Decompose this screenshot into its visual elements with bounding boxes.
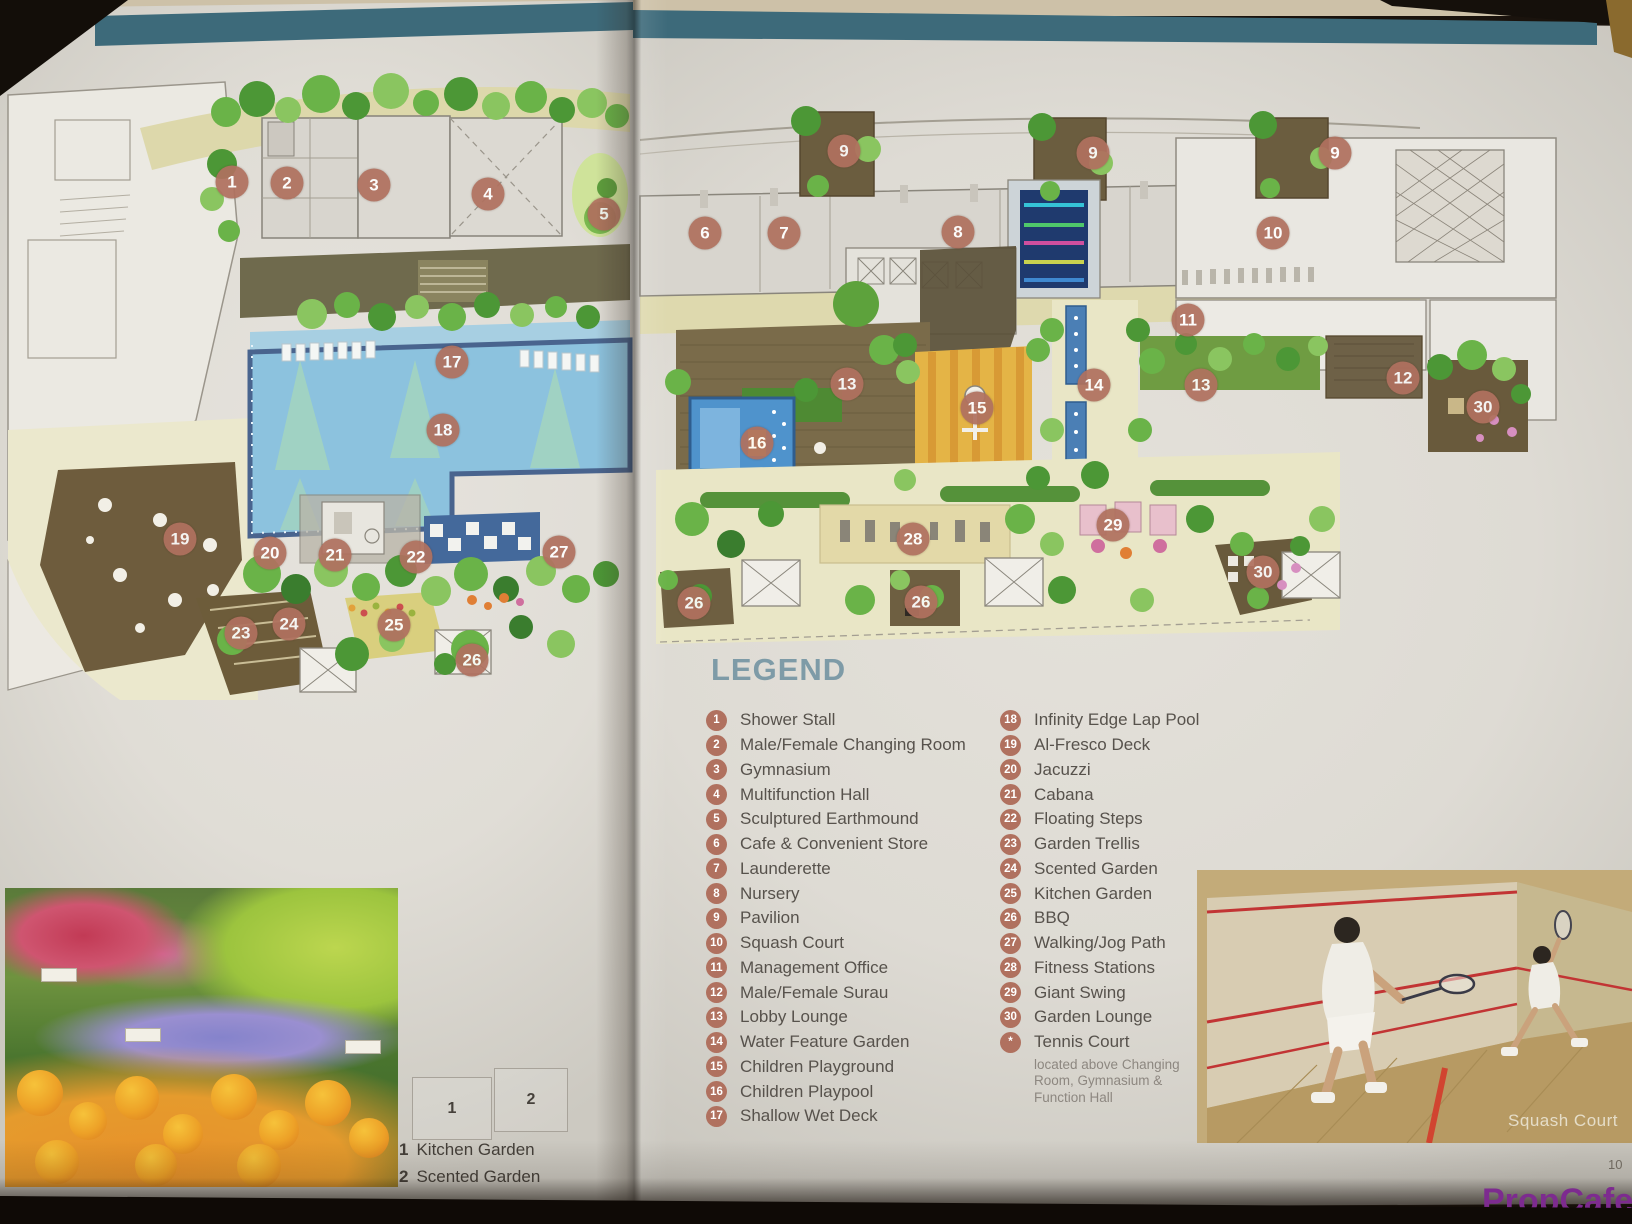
legend-item-label: Kitchen Garden — [1034, 884, 1152, 904]
legend-item-label: Tennis Court — [1034, 1032, 1129, 1052]
marigold-flower — [69, 1102, 107, 1140]
marigold-flower — [35, 1140, 79, 1184]
legend-number-badge: 16 — [706, 1081, 727, 1102]
legend-item-label: Nursery — [740, 884, 800, 904]
legend-number-badge: 12 — [706, 982, 727, 1003]
legend-item: 11 Management Office — [706, 956, 1006, 981]
legend-item-label: Cabana — [1034, 785, 1094, 805]
marigold-flower — [349, 1118, 389, 1158]
plant-label-tag — [41, 968, 77, 982]
legend-number-badge: 13 — [706, 1007, 727, 1028]
legend-item-label: Shower Stall — [740, 710, 835, 730]
caption-number: 2 — [399, 1167, 408, 1187]
legend-item-label: Garden Lounge — [1034, 1007, 1152, 1027]
marigold-flower — [135, 1144, 177, 1186]
squash-photo-caption: Squash Court — [1508, 1111, 1618, 1131]
legend-item-label: Floating Steps — [1034, 809, 1143, 829]
caption-label: Scented Garden — [416, 1167, 540, 1187]
garden-photo — [5, 888, 398, 1187]
legend-item-label: Launderette — [740, 859, 831, 879]
legend-item: 4 Multifunction Hall — [706, 782, 1006, 807]
legend-item-label: Giant Swing — [1034, 983, 1126, 1003]
brochure-photo: 1234567899910111213131415161718192021222… — [0, 0, 1632, 1224]
legend-number-badge: 4 — [706, 784, 727, 805]
legend-number-badge: 7 — [706, 858, 727, 879]
marigold-flower — [237, 1144, 281, 1187]
legend-title: LEGEND — [711, 652, 846, 688]
legend-item: 7 Launderette — [706, 857, 1006, 882]
tennis-note-line: Room, Gymnasium & — [1034, 1073, 1204, 1090]
legend-item-label: Scented Garden — [1034, 859, 1158, 879]
legend-item: 2 Male/Female Changing Room — [706, 733, 1006, 758]
legend-item-label: Multifunction Hall — [740, 785, 869, 805]
inset-box-kitchen-garden: 1 — [412, 1077, 492, 1140]
watermark: PropCafe.Net — [1482, 1182, 1632, 1221]
legend-number-badge: 28 — [1000, 957, 1021, 978]
legend-number-badge: 8 — [706, 883, 727, 904]
legend-item-label: Children Playground — [740, 1057, 894, 1077]
legend-number-badge: 1 — [706, 710, 727, 731]
legend-item: 1 Shower Stall — [706, 708, 1006, 733]
legend-item: 19 Al-Fresco Deck — [1000, 733, 1300, 758]
legend-item-label: Male/Female Surau — [740, 983, 888, 1003]
legend-item: 10 Squash Court — [706, 931, 1006, 956]
legend-item-label: Cafe & Convenient Store — [740, 834, 928, 854]
squash-photo-art — [1197, 870, 1632, 1143]
legend-item: 18 Infinity Edge Lap Pool — [1000, 708, 1300, 733]
legend-column-left: 1 Shower Stall 2 Male/Female Changing Ro… — [706, 708, 1006, 1129]
tennis-note-line: Function Hall — [1034, 1090, 1204, 1107]
tennis-asterisk-badge: * — [1000, 1032, 1021, 1053]
legend-number-badge: 14 — [706, 1032, 727, 1053]
legend-item: 14 Water Feature Garden — [706, 1030, 1006, 1055]
legend-item: 23 Garden Trellis — [1000, 832, 1300, 857]
legend-number-badge: 2 — [706, 735, 727, 756]
legend-item: 17 Shallow Wet Deck — [706, 1104, 1006, 1129]
legend-item-label: Infinity Edge Lap Pool — [1034, 710, 1199, 730]
legend-number-badge: 27 — [1000, 933, 1021, 954]
legend-number-badge: 19 — [1000, 735, 1021, 756]
legend-number-badge: 21 — [1000, 784, 1021, 805]
legend-item: 22 Floating Steps — [1000, 807, 1300, 832]
legend-item: 6 Cafe & Convenient Store — [706, 832, 1006, 857]
legend-number-badge: 9 — [706, 908, 727, 929]
squash-court-photo: Squash Court — [1197, 870, 1632, 1143]
legend-item: 13 Lobby Lounge — [706, 1005, 1006, 1030]
legend-number-badge: 10 — [706, 933, 727, 954]
legend-item-label: Squash Court — [740, 933, 844, 953]
marigold-flower — [305, 1080, 351, 1126]
legend-item-label: Pavilion — [740, 908, 800, 928]
legend-item-label: Male/Female Changing Room — [740, 735, 966, 755]
legend-number-badge: 29 — [1000, 982, 1021, 1003]
legend-item-label: Al-Fresco Deck — [1034, 735, 1150, 755]
marigold-flower — [211, 1074, 257, 1120]
caption-number: 1 — [399, 1140, 408, 1160]
legend-item-label: Water Feature Garden — [740, 1032, 909, 1052]
legend-number-badge: 15 — [706, 1056, 727, 1077]
inset-box-scented-garden: 2 — [494, 1068, 568, 1132]
legend-item: 9 Pavilion — [706, 906, 1006, 931]
page-number: 10 — [1608, 1157, 1622, 1172]
marigold-flower — [115, 1076, 159, 1120]
legend-item-label: Garden Trellis — [1034, 834, 1140, 854]
plant-label-tag — [345, 1040, 381, 1054]
legend-item: 21 Cabana — [1000, 782, 1300, 807]
legend-item-label: Lobby Lounge — [740, 1007, 848, 1027]
legend-number-badge: 18 — [1000, 710, 1021, 731]
tennis-note-line: located above Changing — [1034, 1057, 1204, 1074]
legend-item: 3 Gymnasium — [706, 758, 1006, 783]
legend-item-label: Management Office — [740, 958, 888, 978]
legend-item-label: Shallow Wet Deck — [740, 1106, 878, 1126]
legend-item-label: Children Playpool — [740, 1082, 873, 1102]
legend-number-badge: 3 — [706, 759, 727, 780]
legend-number-badge: 6 — [706, 834, 727, 855]
legend-number-badge: 5 — [706, 809, 727, 830]
legend-item: 8 Nursery — [706, 881, 1006, 906]
tennis-court-note: located above ChangingRoom, Gymnasium &F… — [1034, 1057, 1204, 1107]
legend-number-badge: 20 — [1000, 759, 1021, 780]
legend-item-label: Sculptured Earthmound — [740, 809, 919, 829]
marigold-flower — [17, 1070, 63, 1116]
legend-number-badge: 22 — [1000, 809, 1021, 830]
legend-item: 12 Male/Female Surau — [706, 980, 1006, 1005]
inset-caption: 2 Scented Garden — [399, 1167, 540, 1194]
legend-item-label: Gymnasium — [740, 760, 831, 780]
legend-item: 20 Jacuzzi — [1000, 758, 1300, 783]
legend-item: 15 Children Playground — [706, 1055, 1006, 1080]
legend-number-badge: 30 — [1000, 1007, 1021, 1028]
inset-captions: 1 Kitchen Garden 2 Scented Garden — [399, 1140, 540, 1194]
legend-number-badge: 17 — [706, 1106, 727, 1127]
legend-number-badge: 11 — [706, 957, 727, 978]
legend-number-badge: 26 — [1000, 908, 1021, 929]
legend-item-label: BBQ — [1034, 908, 1070, 928]
legend-number-badge: 23 — [1000, 834, 1021, 855]
caption-label: Kitchen Garden — [416, 1140, 534, 1160]
legend-item: 5 Sculptured Earthmound — [706, 807, 1006, 832]
legend-item: 16 Children Playpool — [706, 1079, 1006, 1104]
legend-item-label: Jacuzzi — [1034, 760, 1091, 780]
legend-number-badge: 25 — [1000, 883, 1021, 904]
plant-label-tag — [125, 1028, 161, 1042]
legend-item-label: Walking/Jog Path — [1034, 933, 1166, 953]
legend-item-label: Fitness Stations — [1034, 958, 1155, 978]
inset-caption: 1 Kitchen Garden — [399, 1140, 540, 1167]
legend-number-badge: 24 — [1000, 858, 1021, 879]
